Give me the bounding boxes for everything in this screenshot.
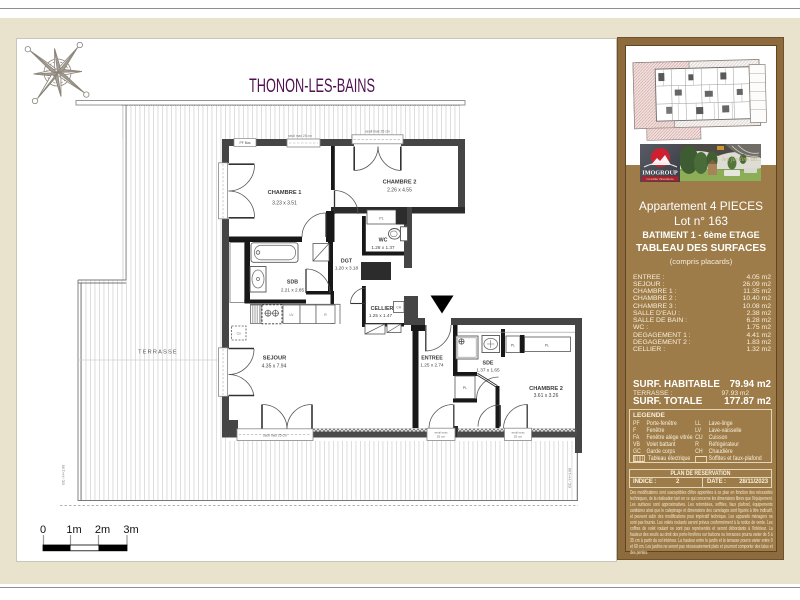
svg-text:2m: 2m <box>95 524 110 536</box>
svg-text:3.23 x 3.51: 3.23 x 3.51 <box>272 201 297 207</box>
svg-text:1.28 x 1.37: 1.28 x 1.37 <box>371 245 395 250</box>
svg-text:Immobilier d'Excellence: Immobilier d'Excellence <box>646 177 674 181</box>
svg-text:seuil max 25 cm: seuil max 25 cm <box>263 434 287 438</box>
svg-text:CHAMBRE 2: CHAMBRE 2 <box>383 180 417 186</box>
svg-text:0: 0 <box>40 524 46 536</box>
svg-text:2.21 x 2.85: 2.21 x 2.85 <box>281 287 305 292</box>
svg-text:GC / H+1.00: GC / H+1.00 <box>62 465 66 485</box>
svg-text:1.37 x 1.65: 1.37 x 1.65 <box>476 368 500 373</box>
svg-text:3m: 3m <box>123 524 138 536</box>
svg-text:PL: PL <box>379 217 383 221</box>
svg-text:4.35 x 7.94: 4.35 x 7.94 <box>262 364 287 370</box>
svg-text:Cu: Cu <box>237 332 241 336</box>
svg-text:seuil max 25 cm: seuil max 25 cm <box>365 130 390 134</box>
svg-text:1.25 x 2.74: 1.25 x 2.74 <box>420 362 444 367</box>
svg-text:1.25 x 1.47: 1.25 x 1.47 <box>369 313 393 318</box>
svg-text:25 cm: 25 cm <box>437 434 446 438</box>
svg-text:THONON-LES-BAINS: THONON-LES-BAINS <box>249 76 375 97</box>
svg-text:les jardins du...: les jardins du... <box>722 156 761 163</box>
svg-text:SEJOUR: SEJOUR <box>263 356 286 362</box>
svg-text:PL: PL <box>463 386 467 390</box>
svg-text:TERRASSE: TERRASSE <box>138 350 178 356</box>
svg-text:2.26 x 4.55: 2.26 x 4.55 <box>387 188 412 194</box>
svg-text:PL: PL <box>545 344 549 348</box>
svg-text:PF Bas: PF Bas <box>239 141 250 145</box>
svg-text:PL: PL <box>511 344 515 348</box>
svg-text:DGT: DGT <box>341 259 353 265</box>
svg-text:IMOGROUP: IMOGROUP <box>642 170 678 177</box>
svg-text:3.61 x 3.26: 3.61 x 3.26 <box>534 393 559 399</box>
svg-text:CHAMBRE 1: CHAMBRE 1 <box>268 190 302 196</box>
svg-text:25 cm: 25 cm <box>514 434 523 438</box>
svg-text:ENTREE: ENTREE <box>421 356 443 362</box>
svg-text:CH: CH <box>396 306 401 310</box>
svg-text:WC: WC <box>379 238 388 244</box>
svg-text:SDB: SDB <box>287 280 298 286</box>
svg-text:CHAMBRE 2: CHAMBRE 2 <box>529 386 563 392</box>
svg-text:GC / H+1.00: GC / H+1.00 <box>568 468 572 488</box>
svg-text:CELLIER: CELLIER <box>371 306 394 312</box>
svg-text:seuil max 25 cm: seuil max 25 cm <box>288 134 312 138</box>
svg-text:1m: 1m <box>66 524 81 536</box>
svg-text:1.20 x 3.18: 1.20 x 3.18 <box>335 266 359 271</box>
svg-text:SDE: SDE <box>483 361 494 367</box>
